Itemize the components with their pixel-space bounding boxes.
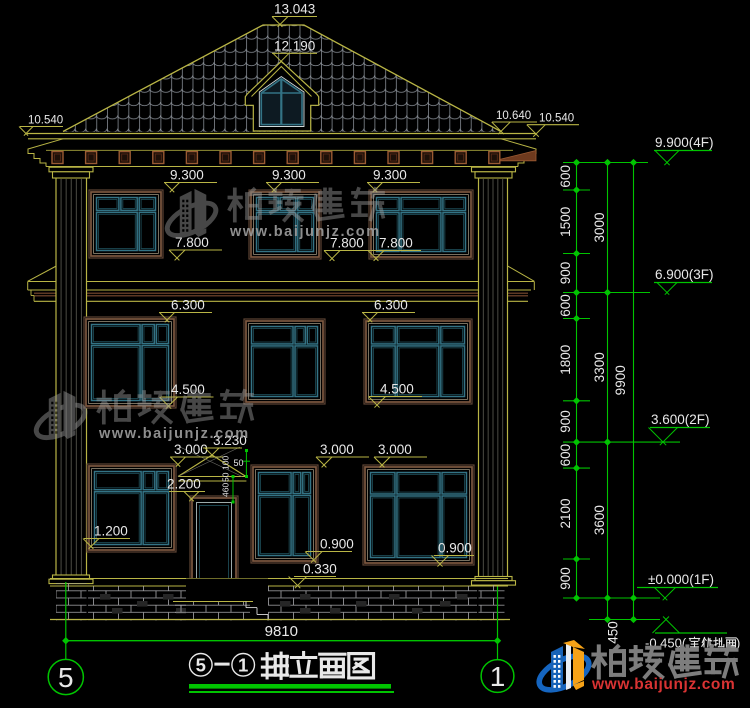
- svg-text:450: 450: [606, 621, 621, 644]
- svg-text:0.900: 0.900: [438, 541, 472, 556]
- svg-text:9810: 9810: [265, 623, 298, 640]
- svg-text:900: 900: [558, 410, 573, 433]
- svg-text:6.900(3F): 6.900(3F): [655, 267, 714, 282]
- svg-text:±0.000(1F): ±0.000(1F): [648, 572, 714, 587]
- svg-text:3.000: 3.000: [320, 442, 354, 457]
- svg-text:12.190: 12.190: [274, 38, 315, 53]
- svg-text:7.800: 7.800: [379, 236, 413, 251]
- svg-text:50: 50: [221, 472, 231, 482]
- svg-text:2.200: 2.200: [167, 477, 201, 492]
- svg-text:4.500: 4.500: [380, 382, 414, 397]
- svg-text:www.baijunjz.com: www.baijunjz.com: [591, 676, 735, 693]
- svg-text:10.540: 10.540: [539, 113, 574, 125]
- svg-text:50: 50: [234, 458, 244, 468]
- svg-text:3300: 3300: [592, 352, 607, 382]
- svg-text:www.baijunjz.com: www.baijunjz.com: [98, 426, 250, 442]
- svg-text:9.300: 9.300: [272, 168, 306, 183]
- svg-text:9.900(4F): 9.900(4F): [655, 135, 714, 150]
- svg-text:www.baijunjz.com: www.baijunjz.com: [229, 224, 381, 240]
- svg-text:6.300: 6.300: [171, 298, 205, 313]
- svg-text:3.000: 3.000: [174, 442, 208, 457]
- svg-text:1: 1: [238, 654, 248, 675]
- svg-text:900: 900: [558, 262, 573, 285]
- svg-text:10.640: 10.640: [496, 110, 531, 122]
- svg-text:1800: 1800: [558, 345, 573, 375]
- svg-text:1500: 1500: [558, 207, 573, 237]
- svg-text:5: 5: [58, 662, 74, 693]
- svg-text:1.200: 1.200: [94, 524, 128, 539]
- svg-text:2100: 2100: [558, 498, 573, 528]
- svg-text:3600: 3600: [592, 505, 607, 535]
- svg-text:9.300: 9.300: [373, 168, 407, 183]
- svg-text:0.330: 0.330: [303, 562, 337, 577]
- svg-text:3.000: 3.000: [378, 442, 412, 457]
- svg-text:0.900: 0.900: [320, 537, 354, 552]
- svg-text:3000: 3000: [592, 212, 607, 242]
- svg-text:900: 900: [558, 567, 573, 590]
- svg-text:100: 100: [221, 456, 231, 470]
- svg-text:600: 600: [558, 294, 573, 317]
- svg-text:600: 600: [558, 165, 573, 188]
- svg-text:5: 5: [196, 654, 206, 675]
- svg-text:13.043: 13.043: [274, 2, 315, 17]
- svg-text:10.540: 10.540: [28, 115, 63, 127]
- svg-text:460: 460: [221, 483, 231, 497]
- svg-text:600: 600: [558, 444, 573, 467]
- svg-text:3.600(2F): 3.600(2F): [651, 412, 710, 427]
- svg-text:9900: 9900: [613, 365, 628, 395]
- svg-text:1: 1: [490, 661, 506, 692]
- svg-text:9.300: 9.300: [170, 168, 204, 183]
- svg-text:6.300: 6.300: [374, 298, 408, 313]
